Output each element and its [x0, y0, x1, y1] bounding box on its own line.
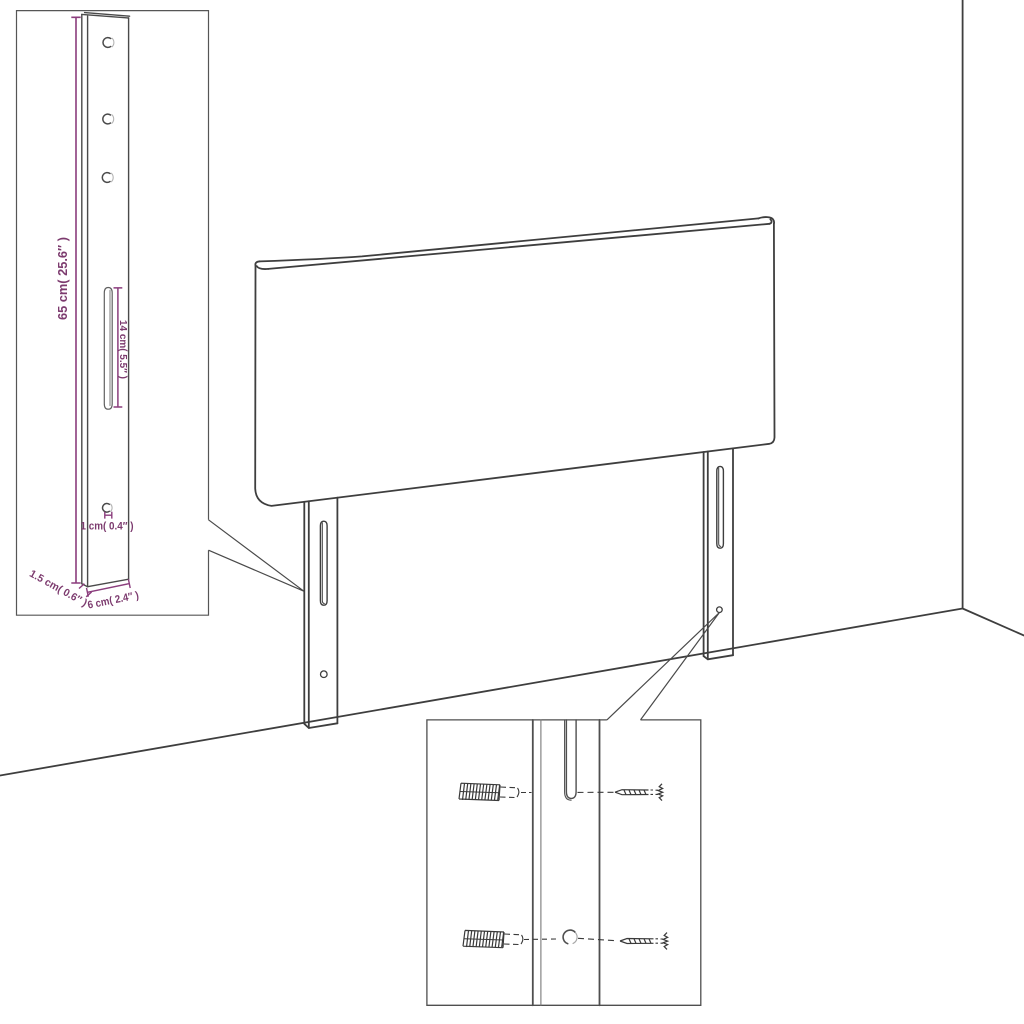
- svg-text:14 cm( 5.5″ ): 14 cm( 5.5″ ): [117, 320, 128, 379]
- svg-text:6 cm( 2.4″ ): 6 cm( 2.4″ ): [87, 589, 141, 611]
- svg-text:65 cm( 25.6″ ): 65 cm( 25.6″ ): [55, 237, 70, 320]
- svg-text:1 cm( 0.4″ ): 1 cm( 0.4″ ): [81, 520, 134, 532]
